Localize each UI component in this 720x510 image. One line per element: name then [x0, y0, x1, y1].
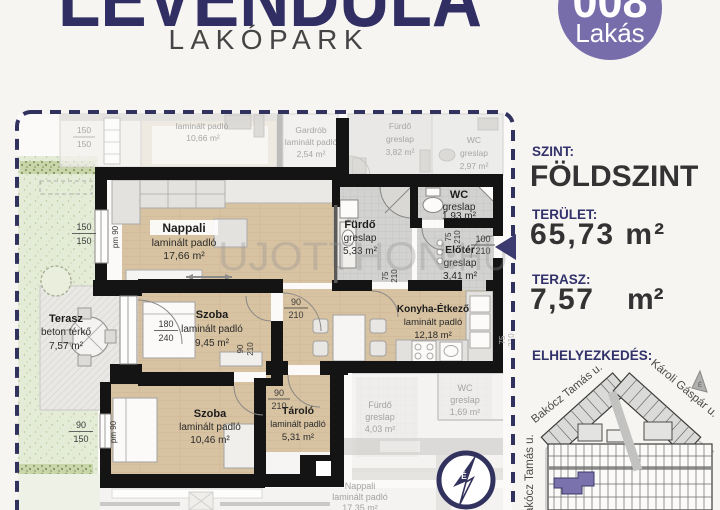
svg-text:7,57 m²: 7,57 m²	[49, 341, 84, 352]
svg-text:greslap: greslap	[386, 134, 414, 144]
svg-text:Terasz: Terasz	[49, 313, 84, 325]
svg-text:Fürdő: Fürdő	[389, 121, 411, 131]
svg-text:WC: WC	[458, 383, 473, 393]
svg-text:150: 150	[77, 139, 91, 149]
svg-text:Szoba: Szoba	[196, 309, 229, 321]
svg-text:beton térkő: beton térkő	[41, 327, 91, 338]
svg-text:5,31 m²: 5,31 m²	[282, 432, 314, 443]
svg-text:pm 90: pm 90	[109, 420, 118, 443]
svg-text:Fürdő: Fürdő	[344, 219, 375, 231]
svg-text:75: 75	[498, 335, 507, 344]
svg-text:7,57: 7,57	[530, 283, 594, 316]
svg-text:greslap: greslap	[450, 395, 480, 405]
svg-text:pm 90: pm 90	[111, 225, 120, 248]
svg-text:laminált padló: laminált padló	[181, 324, 243, 335]
svg-text:UJOTTHON: UJOTTHON	[218, 235, 448, 279]
svg-text:Nappali: Nappali	[162, 221, 205, 235]
svg-text:210: 210	[246, 342, 255, 356]
svg-text:4,03 m²: 4,03 m²	[365, 424, 396, 434]
svg-text:150: 150	[73, 434, 88, 444]
svg-text:Szoba: Szoba	[194, 408, 227, 420]
svg-text:laminált padló: laminált padló	[285, 137, 338, 147]
svg-text:1,69 m²: 1,69 m²	[450, 407, 481, 417]
svg-text:Konyha-Étkező: Konyha-Étkező	[397, 302, 469, 315]
svg-text:210: 210	[271, 401, 286, 411]
svg-text:WC: WC	[450, 189, 468, 201]
svg-text:10,46 m²: 10,46 m²	[190, 435, 230, 446]
svg-text:90: 90	[274, 388, 284, 398]
svg-text:SZINT:: SZINT:	[532, 144, 574, 159]
svg-text:3,82 m²: 3,82 m²	[386, 147, 415, 157]
svg-text:m²: m²	[627, 283, 664, 316]
svg-text:210: 210	[288, 310, 303, 320]
svg-text:9,45 m²: 9,45 m²	[195, 338, 230, 349]
svg-text:150: 150	[76, 222, 91, 232]
svg-text:laminált padló: laminált padló	[332, 492, 388, 502]
svg-text:2,54 m²: 2,54 m²	[297, 149, 326, 159]
svg-text:laminált padló: laminált padló	[404, 317, 463, 328]
svg-text:2,97 m²: 2,97 m²	[460, 161, 489, 171]
svg-text:150: 150	[76, 236, 91, 246]
svg-text:180: 180	[158, 319, 173, 329]
svg-text:HU: HU	[458, 235, 508, 279]
svg-text:laminált padló: laminált padló	[176, 121, 229, 131]
svg-text:laminált padló: laminált padló	[270, 419, 326, 429]
svg-text:Bakócz Tamás u.: Bakócz Tamás u.	[524, 434, 536, 510]
svg-text:17,35 m²: 17,35 m²	[342, 503, 378, 510]
svg-text:WC: WC	[467, 135, 481, 145]
svg-text:150: 150	[77, 125, 91, 135]
svg-text:greslap: greslap	[365, 412, 395, 422]
svg-text:65,73 m²: 65,73 m²	[530, 218, 666, 251]
svg-text:ELHELYEZKEDÉS:: ELHELYEZKEDÉS:	[532, 348, 652, 363]
svg-text:laminált padló: laminált padló	[152, 237, 217, 249]
svg-text:240: 240	[158, 333, 173, 343]
svg-text:12,18 m²: 12,18 m²	[414, 330, 452, 341]
svg-text:greslap: greslap	[460, 148, 488, 158]
svg-text:90: 90	[291, 297, 301, 307]
svg-text:90: 90	[236, 344, 245, 353]
svg-text:FÖLDSZINT: FÖLDSZINT	[530, 160, 698, 193]
svg-text:Tároló: Tároló	[282, 405, 314, 417]
svg-text:1,93 m²: 1,93 m²	[442, 211, 477, 222]
svg-text:É: É	[698, 382, 702, 389]
svg-text:90: 90	[76, 420, 86, 430]
svg-text:10,66 m²: 10,66 m²	[186, 133, 220, 143]
svg-text:Fürdő: Fürdő	[368, 400, 392, 410]
svg-text:Lakás: Lakás	[575, 18, 644, 48]
svg-text:Gardrób: Gardrób	[295, 125, 326, 135]
svg-text:laminált padló: laminált padló	[179, 422, 241, 433]
svg-text:17,66 m²: 17,66 m²	[163, 250, 205, 262]
svg-text:É: É	[461, 471, 467, 481]
svg-text:Nappali: Nappali	[345, 481, 376, 491]
